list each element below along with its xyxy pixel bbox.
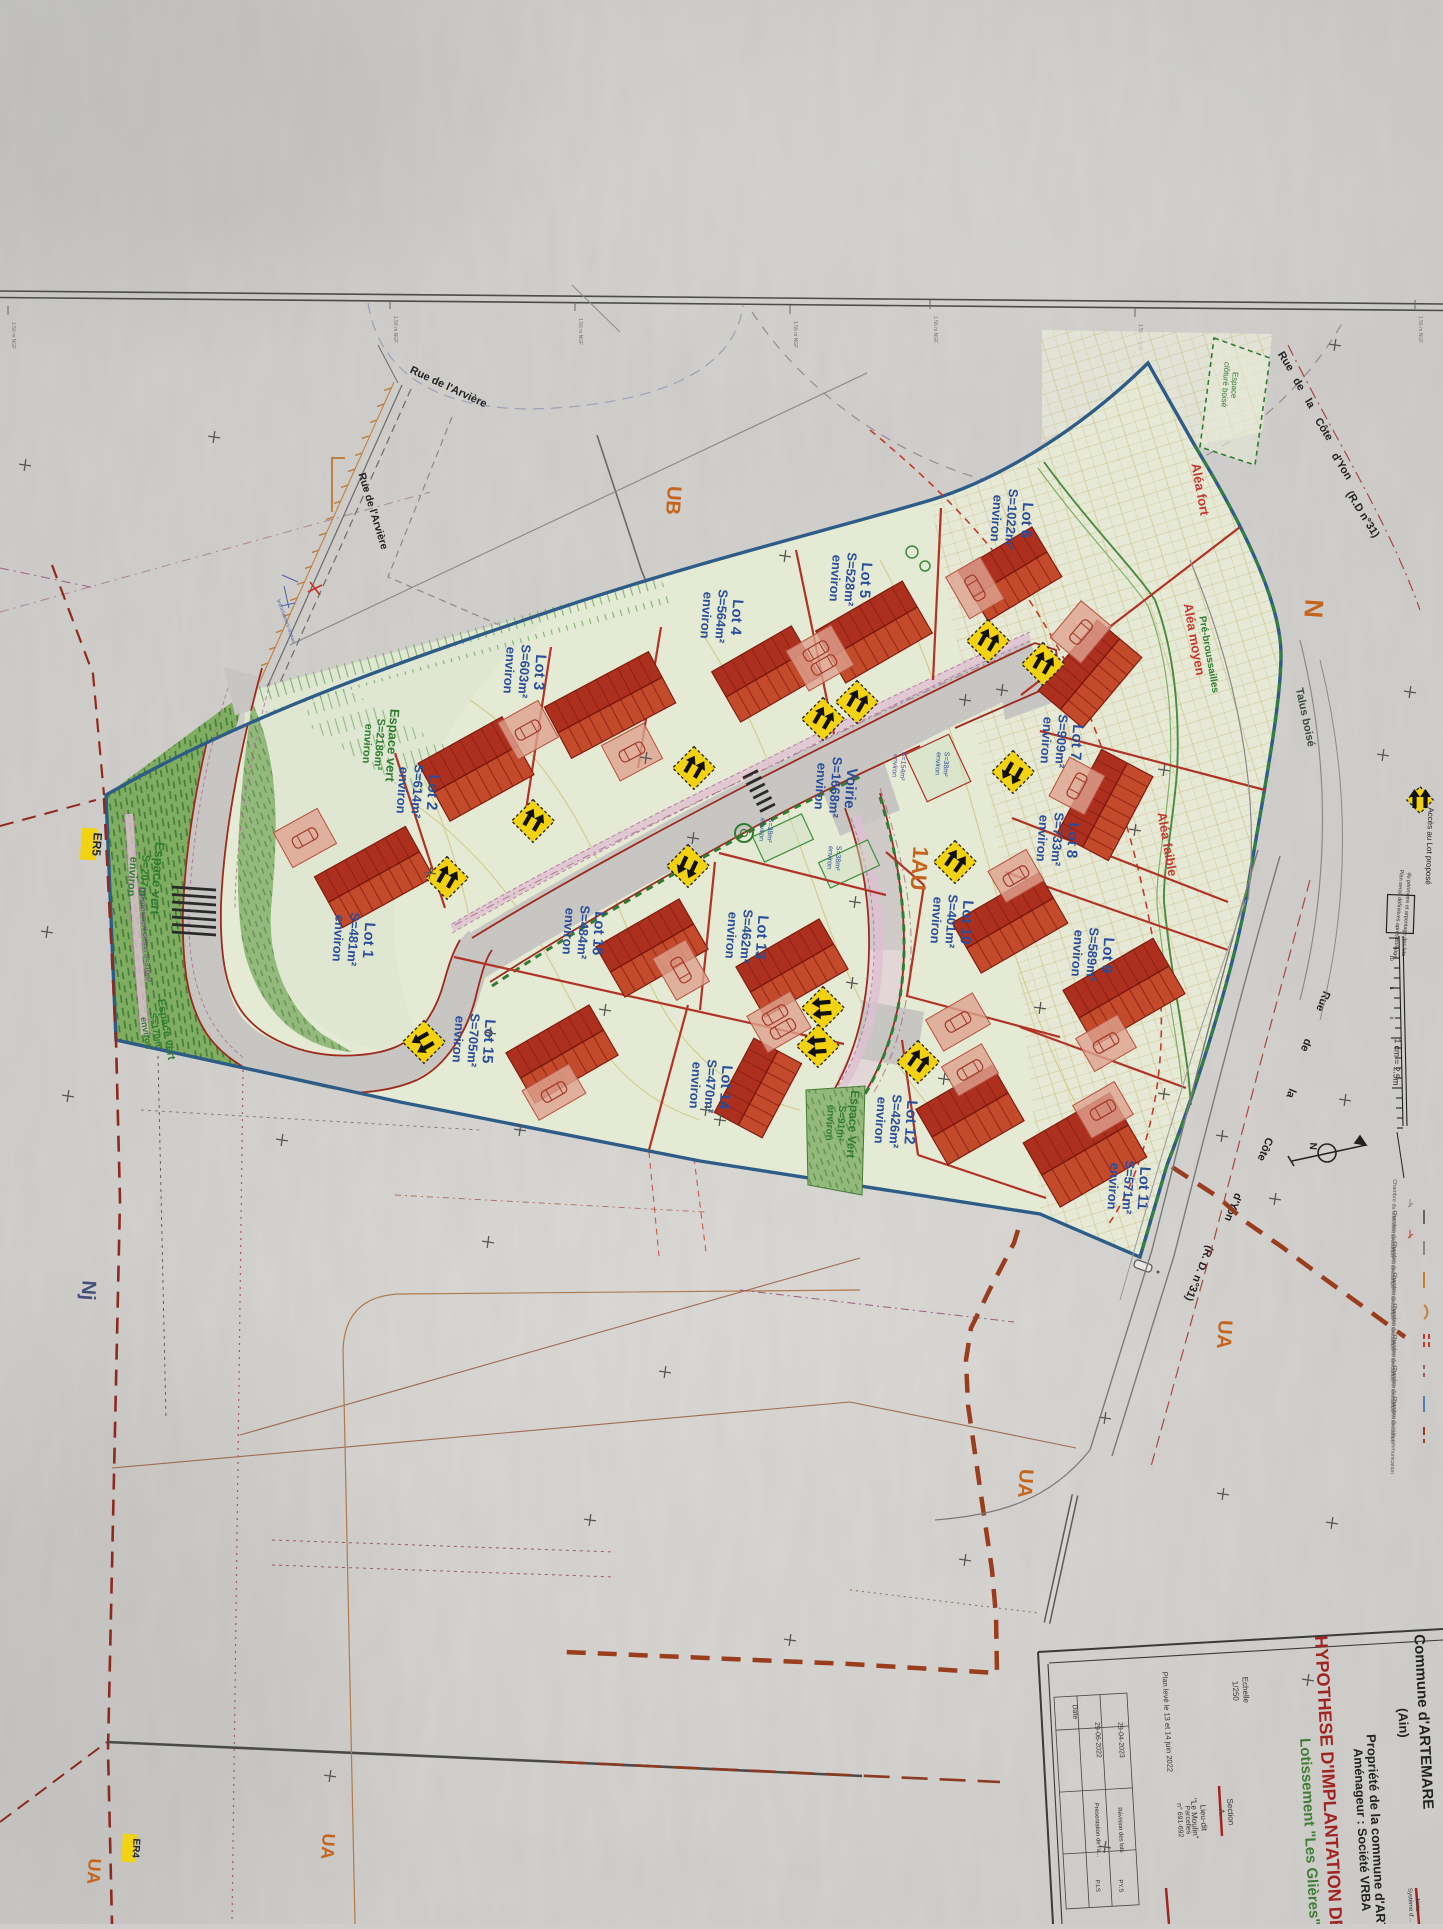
- svg-text:(Ain): (Ain): [1395, 1708, 1412, 1738]
- svg-text:1.56 m NGF: 1.56 m NGF: [1417, 316, 1423, 343]
- svg-text:Nj: Nj: [76, 1280, 99, 1301]
- svg-text:1.56 m NGF: 1.56 m NGF: [792, 321, 798, 348]
- svg-text:Nota: Nota: [1414, 1898, 1421, 1912]
- svg-text:ER5: ER5: [89, 832, 105, 857]
- svg-text:1.56 m NGF: 1.56 m NGF: [577, 318, 583, 345]
- svg-text:0: 0: [1388, 1017, 1394, 1020]
- svg-text:UA: UA: [1013, 1468, 1037, 1498]
- svg-text:Echelle: Echelle: [1240, 1677, 1250, 1704]
- svg-text:5: 5: [1388, 987, 1394, 990]
- svg-text:UA: UA: [1212, 1319, 1236, 1349]
- svg-text:UA: UA: [317, 1833, 339, 1860]
- svg-text:ER4: ER4: [129, 1838, 141, 1859]
- svg-text:1.56 m NGF: 1.56 m NGF: [932, 316, 938, 343]
- svg-text:1/250: 1/250: [1230, 1681, 1240, 1702]
- svg-text:1.56 m NGF: 1.56 m NGF: [10, 322, 16, 349]
- svg-text:1.56 m NGF: 1.56 m NGF: [392, 316, 398, 343]
- svg-text:UB: UB: [661, 485, 685, 515]
- svg-text:10: 10: [1388, 955, 1394, 961]
- svg-text:PY.S: PY.S: [1117, 1879, 1124, 1892]
- svg-text:N: N: [1298, 598, 1329, 619]
- svg-text:1 cm = 2.5m: 1 cm = 2.5m: [1391, 1038, 1403, 1085]
- svg-text:1AU: 1AU: [905, 846, 933, 892]
- svg-text:N: N: [1307, 1142, 1318, 1150]
- svg-text:P.LS: P.LS: [1094, 1880, 1101, 1893]
- svg-text:UA: UA: [83, 1858, 105, 1885]
- svg-text:Date: Date: [1071, 1704, 1079, 1719]
